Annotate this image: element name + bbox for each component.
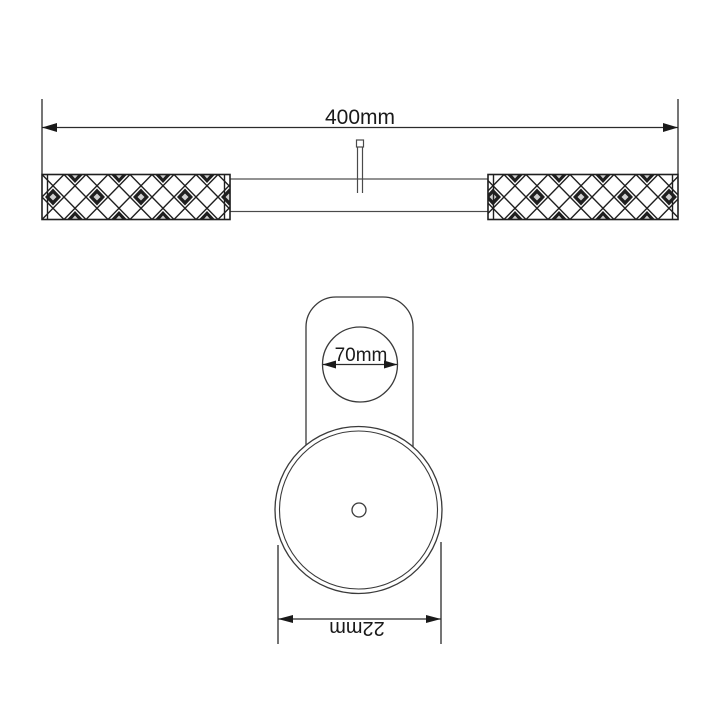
width-dimension-label: 400mm [325, 106, 395, 129]
knurl-right-body [488, 175, 678, 220]
base-circle-outer [275, 427, 442, 594]
hole-70mm: 70mm [323, 327, 398, 402]
top-view-rod: 400mm [42, 99, 678, 220]
knurl-left-grip [42, 175, 230, 220]
rod-middle-section [230, 179, 488, 212]
front-view-bracket: 70mm 22mm [275, 297, 442, 644]
knurl-right-grip [488, 175, 678, 220]
pin-cap [357, 140, 364, 147]
arrowhead-right [663, 123, 678, 132]
technical-drawing: 400mm [0, 0, 720, 720]
arrowhead-left [42, 123, 57, 132]
knurl-left-body [42, 175, 230, 220]
hole-dimension-label: 70mm [335, 345, 388, 366]
arrowhead-right [426, 615, 441, 623]
base-circle [275, 427, 442, 594]
arrowhead-left [278, 615, 293, 623]
base-dimension-label: 22mm [329, 617, 385, 639]
drawing-canvas: 400mm [0, 0, 720, 720]
